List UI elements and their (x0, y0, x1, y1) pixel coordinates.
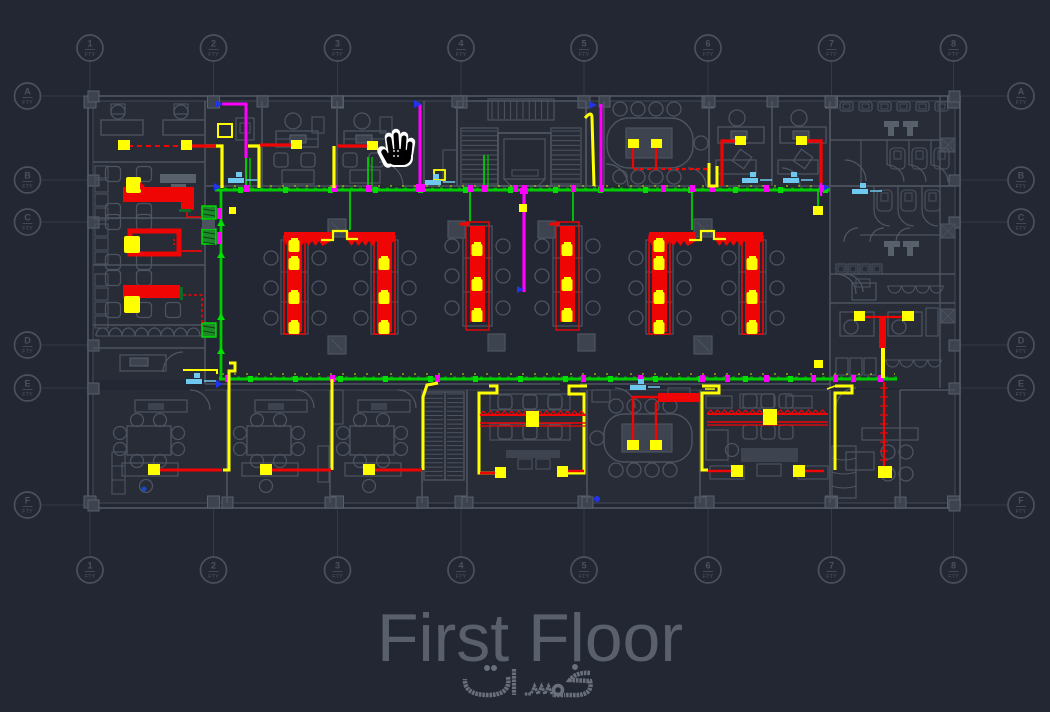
svg-text:FTY: FTY (332, 574, 343, 580)
svg-text:FTY: FTY (208, 52, 219, 58)
svg-text:FTY: FTY (332, 52, 343, 58)
svg-text:FTY: FTY (1016, 226, 1027, 232)
svg-text:FTY: FTY (22, 509, 33, 515)
svg-text:FTY: FTY (1016, 349, 1027, 355)
svg-text:5: 5 (581, 39, 586, 49)
svg-text:FTY: FTY (948, 52, 959, 58)
svg-text:C: C (24, 213, 31, 223)
svg-text:FTY: FTY (22, 392, 33, 398)
svg-text:C: C (1018, 213, 1025, 223)
svg-text:FTY: FTY (456, 574, 467, 580)
svg-text:FTY: FTY (579, 574, 590, 580)
svg-text:7: 7 (829, 561, 834, 571)
svg-text:FTY: FTY (85, 574, 96, 580)
svg-text:FTY: FTY (208, 574, 219, 580)
svg-text:1: 1 (87, 561, 92, 571)
svg-text:D: D (24, 336, 31, 346)
svg-text:D: D (1018, 336, 1025, 346)
svg-text:FTY: FTY (456, 52, 467, 58)
svg-text:6: 6 (705, 561, 710, 571)
svg-text:8: 8 (951, 561, 956, 571)
svg-text:FTY: FTY (1016, 392, 1027, 398)
svg-text:4: 4 (458, 561, 463, 571)
svg-text:FTY: FTY (826, 52, 837, 58)
svg-text:FTY: FTY (1016, 184, 1027, 190)
svg-text:8: 8 (951, 39, 956, 49)
svg-text:FTY: FTY (948, 574, 959, 580)
svg-text:FTY: FTY (1016, 100, 1027, 106)
svg-text:FTY: FTY (22, 349, 33, 355)
svg-text:FTY: FTY (1016, 509, 1027, 515)
svg-text:FTY: FTY (703, 52, 714, 58)
svg-text:E: E (24, 379, 30, 389)
svg-text:B: B (24, 171, 31, 181)
svg-text:FTY: FTY (826, 574, 837, 580)
svg-text:3: 3 (335, 561, 340, 571)
svg-text:5: 5 (581, 561, 586, 571)
svg-text:First Floor: First Floor (377, 600, 683, 676)
svg-text:4: 4 (458, 39, 463, 49)
svg-text:FTY: FTY (703, 574, 714, 580)
svg-text:FTY: FTY (22, 226, 33, 232)
svg-text:F: F (1018, 496, 1024, 506)
svg-text:E: E (1018, 379, 1024, 389)
svg-text:2: 2 (211, 561, 216, 571)
svg-text:FTY: FTY (85, 52, 96, 58)
svg-text:6: 6 (705, 39, 710, 49)
svg-text:7: 7 (829, 39, 834, 49)
svg-text:FTY: FTY (22, 184, 33, 190)
svg-text:3: 3 (335, 39, 340, 49)
svg-text:FTY: FTY (579, 52, 590, 58)
svg-text:B: B (1018, 171, 1025, 181)
svg-text:FTY: FTY (22, 100, 33, 106)
svg-text:1: 1 (87, 39, 92, 49)
svg-text:F: F (25, 496, 31, 506)
svg-text:2: 2 (211, 39, 216, 49)
svg-text:A: A (24, 87, 31, 97)
svg-text:A: A (1018, 87, 1025, 97)
